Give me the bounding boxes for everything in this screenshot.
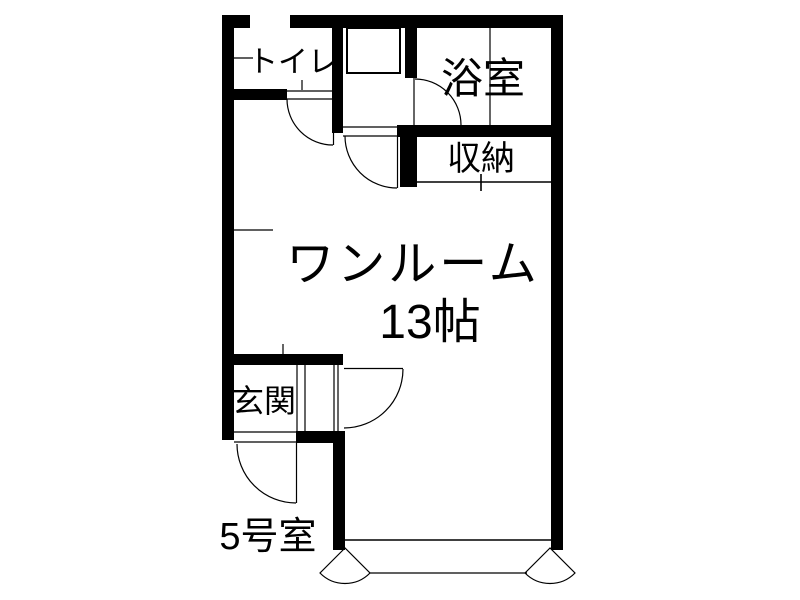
unit-number-label: 5号室 [219, 516, 316, 558]
genkan-label: 玄関 [232, 383, 296, 419]
storage-label: 収納 [447, 140, 515, 178]
toilet-label: トイレ [248, 46, 338, 79]
top-wall-right-segment [290, 15, 563, 28]
right-outer-wall [551, 15, 563, 550]
bath-storage-divider-wall [397, 125, 563, 137]
main-room-label-line2: 13帖 [379, 296, 480, 349]
main-room-label-line1: ワンルーム [286, 238, 540, 291]
floorplan-canvas: トイレ 浴室 収納 ワンルーム 13帖 玄関 5号室 [0, 0, 800, 600]
lower-left-wall [333, 431, 345, 550]
toilet-bottom-wall [234, 89, 287, 100]
bath-label: 浴室 [441, 55, 525, 102]
bath-left-wall [405, 15, 417, 78]
left-outer-wall [222, 15, 234, 440]
floorplan: トイレ 浴室 収納 ワンルーム 13帖 玄関 5号室 [0, 0, 800, 600]
storage-left-wall [400, 137, 417, 187]
genkan-top-wall [234, 354, 343, 365]
